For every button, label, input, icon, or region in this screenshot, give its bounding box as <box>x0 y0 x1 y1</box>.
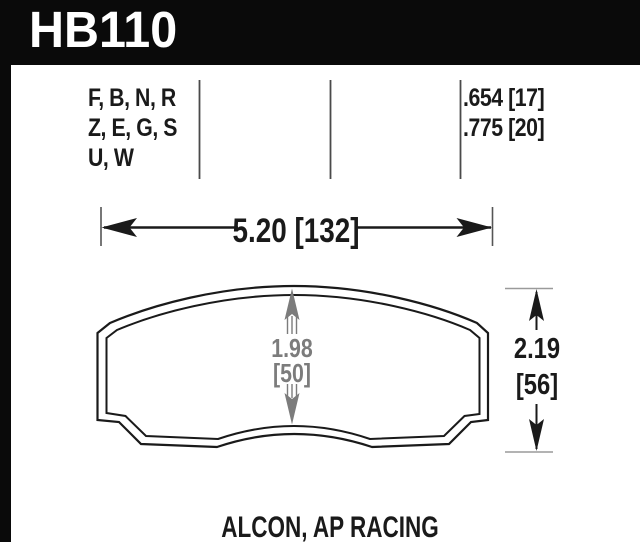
compound-codes-text3: U, W <box>88 143 134 173</box>
arrow-left-icon <box>102 218 138 237</box>
part-number: HB110 <box>29 0 185 65</box>
compound-codes-line2: Z, E, G, S <box>88 113 193 143</box>
arrow-up-icon <box>529 289 544 321</box>
pad-thickness-line2: .775 [20] <box>463 113 559 143</box>
caliper-applications-text: ALCON, AP RACING <box>221 511 439 545</box>
pad-thickness-values: .654 [17] .775 [20] <box>463 83 559 143</box>
compound-codes-line3: U, W <box>88 143 193 173</box>
left-frame-strip <box>0 0 11 542</box>
overall-width-text: 5.20 [132] <box>232 212 359 251</box>
arrow-right-icon <box>457 218 493 237</box>
pad-thickness-text1: .654 [17] <box>463 83 544 113</box>
overall-width-label: 5.20 [132] <box>219 212 374 251</box>
brake-pad-spec-sheet: HB110 F, B, N, R Z, E, G, S U, W .654 [1… <box>0 0 640 553</box>
overall-height-inches-text: 2.19 <box>514 333 560 366</box>
header-band: HB110 <box>0 0 640 65</box>
compound-codes-text2: Z, E, G, S <box>88 113 177 143</box>
arrow-up-icon <box>285 289 300 321</box>
overall-height-mm-text: [56] <box>516 369 558 402</box>
spec-column-dividers <box>200 80 461 179</box>
center-height-mm-text: [50] <box>273 358 311 389</box>
overall-height-mm-label: [56] <box>511 369 563 402</box>
pad-thickness-text2: .775 [20] <box>463 113 544 143</box>
arrow-down-icon <box>285 393 300 425</box>
caliper-applications: ALCON, AP RACING <box>185 511 475 545</box>
center-height-mm-label: [50] <box>269 358 315 389</box>
arrow-down-icon <box>529 419 544 451</box>
overall-height-inches-label: 2.19 <box>509 333 565 366</box>
hatched-shaft-upper <box>288 314 297 334</box>
compound-codes-text1: F, B, N, R <box>88 83 176 113</box>
part-number-text: HB110 <box>29 0 177 60</box>
compound-codes-line1: F, B, N, R <box>88 83 193 113</box>
compound-codes: F, B, N, R Z, E, G, S U, W <box>88 83 193 173</box>
pad-thickness-line1: .654 [17] <box>463 83 559 113</box>
